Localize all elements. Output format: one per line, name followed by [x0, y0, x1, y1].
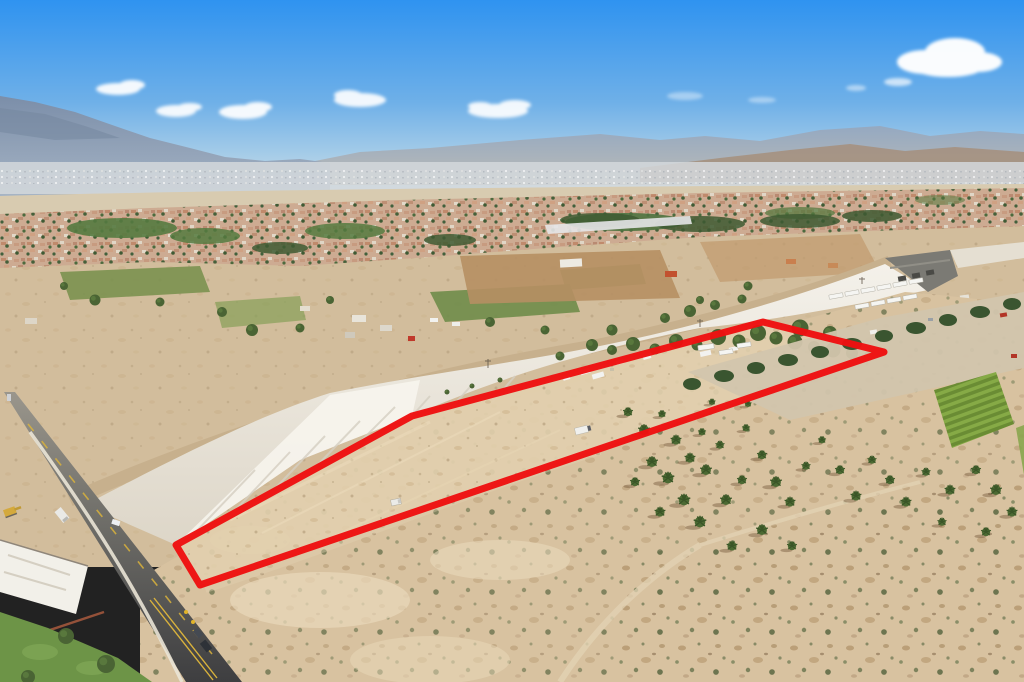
windbreak-tree	[714, 370, 734, 382]
building	[560, 258, 582, 267]
utility-cart	[610, 368, 614, 371]
shipping-container	[408, 336, 415, 341]
dirt-field	[460, 250, 680, 304]
red-truck	[1011, 354, 1017, 358]
tree	[556, 352, 565, 361]
building	[352, 315, 366, 322]
sand-patch	[230, 572, 410, 628]
windbreak-tree	[1003, 298, 1021, 310]
tree	[744, 282, 753, 291]
tree	[326, 296, 334, 304]
tree-cluster	[842, 210, 902, 222]
tree-cluster	[424, 234, 476, 246]
golf-green	[67, 218, 177, 238]
bush	[470, 384, 475, 389]
building	[345, 332, 355, 338]
building	[828, 263, 838, 268]
distant-city-speckle	[0, 170, 1024, 184]
road-sign-yellow	[184, 610, 188, 614]
building	[25, 318, 37, 324]
bush	[498, 378, 503, 383]
tree-cluster	[252, 242, 308, 254]
small-car	[7, 394, 11, 401]
tree	[684, 305, 696, 317]
building	[786, 259, 796, 264]
tree	[541, 326, 550, 335]
windbreak-tree	[970, 306, 990, 318]
road-sign-yellow	[191, 620, 195, 624]
tree	[738, 295, 747, 304]
bush	[445, 390, 450, 395]
tree	[58, 628, 74, 644]
tree	[607, 325, 618, 336]
sand-patch	[430, 540, 570, 580]
sand-patch	[350, 636, 510, 682]
golf-green	[915, 195, 965, 205]
tree	[156, 298, 165, 307]
windbreak-tree	[778, 354, 798, 366]
tree	[586, 339, 598, 351]
windbreak-tree	[906, 322, 926, 334]
white-van	[430, 318, 438, 322]
tree	[60, 282, 68, 290]
tree	[770, 332, 783, 345]
golf-green	[305, 223, 385, 239]
white-van	[452, 322, 460, 326]
aerial-photo	[0, 0, 1024, 682]
aerial-photo-svg	[0, 0, 1024, 682]
tree-cluster	[760, 214, 840, 228]
building	[665, 271, 677, 277]
tree	[710, 300, 720, 310]
windbreak-tree	[875, 330, 893, 342]
tree	[626, 337, 640, 351]
tree	[607, 345, 617, 355]
grey-truck	[928, 318, 933, 321]
windbreak-tree	[683, 378, 701, 390]
tree	[97, 655, 115, 673]
windbreak-tree	[939, 314, 957, 326]
tree	[485, 317, 495, 327]
building	[380, 325, 392, 331]
tree	[90, 295, 101, 306]
windbreak-tree	[811, 346, 829, 358]
golf-green	[170, 228, 240, 244]
tree	[246, 324, 258, 336]
tree	[217, 307, 227, 317]
building	[300, 306, 310, 311]
tree	[660, 313, 670, 323]
lawn-light-patch	[22, 644, 58, 660]
tree	[296, 324, 305, 333]
windbreak-tree	[747, 362, 765, 374]
tree	[696, 296, 704, 304]
